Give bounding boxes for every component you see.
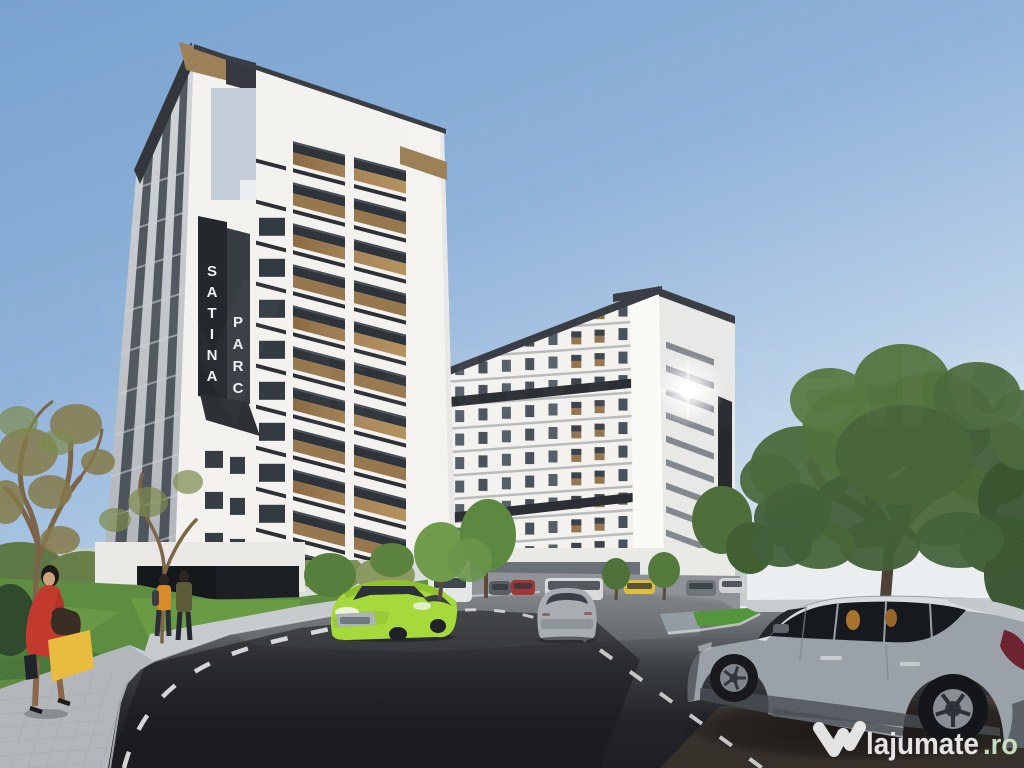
svg-text:T: T — [207, 305, 216, 322]
svg-text:lajumate: lajumate — [866, 726, 979, 761]
svg-text:I: I — [210, 326, 214, 343]
svg-text:S: S — [207, 263, 217, 280]
svg-text:lajumate.ro: lajumate.ro — [300, 294, 1024, 456]
svg-text:A: A — [207, 284, 218, 301]
svg-text:.ro: .ro — [983, 729, 1018, 761]
